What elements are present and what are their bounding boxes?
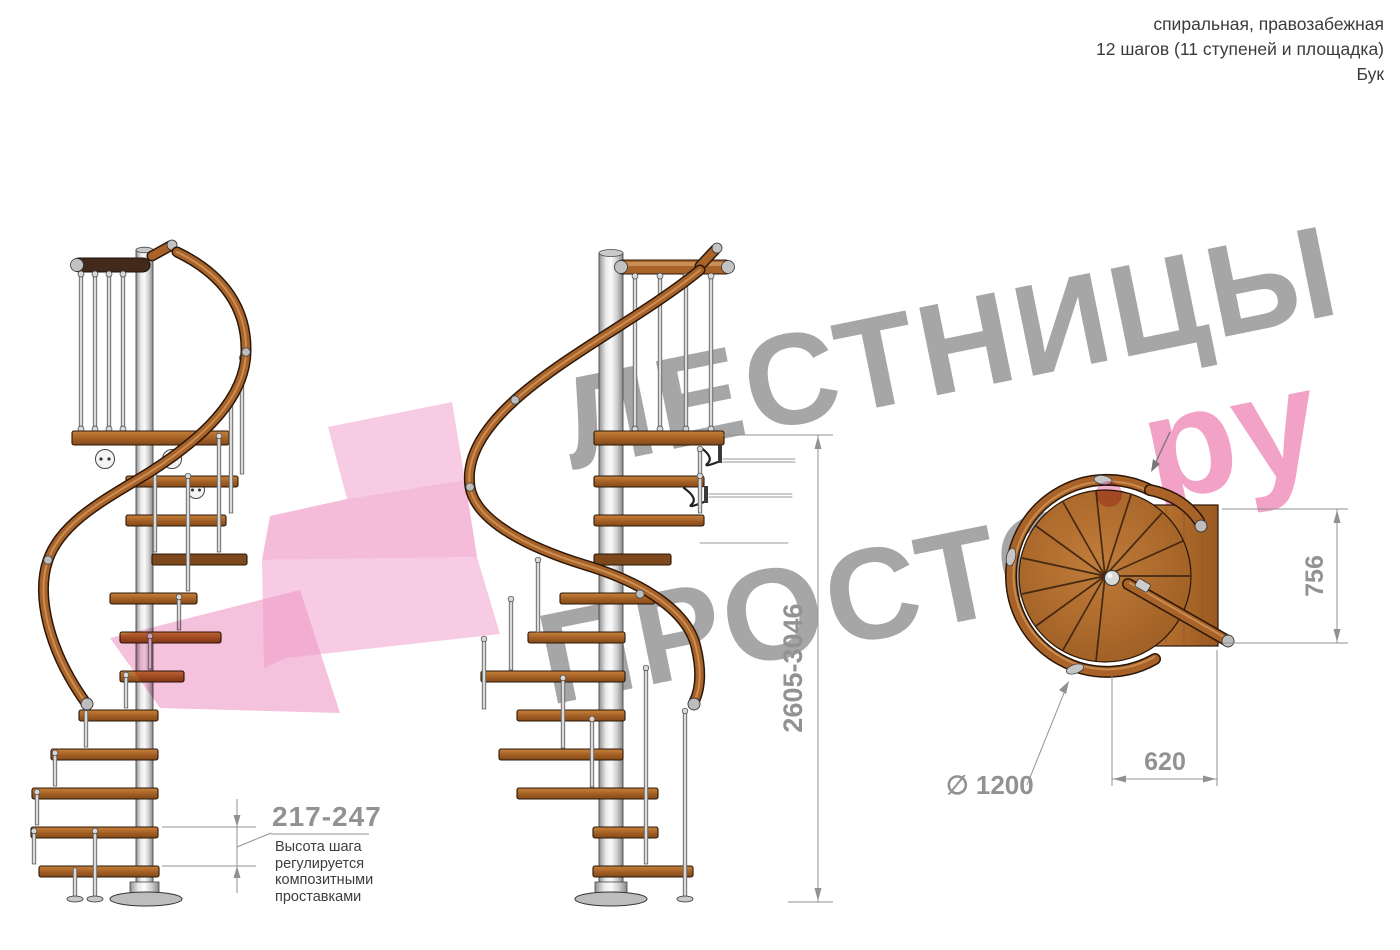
header-steps-line: 12 шагов (11 ступеней и площадка): [1096, 37, 1384, 62]
step-height-note: Высота шага регулируется композитными пр…: [275, 839, 373, 905]
arrow-facet-tail: [110, 590, 340, 713]
pink-arrow-watermark: [0, 0, 1400, 950]
header-material-line: Бук: [1096, 62, 1384, 87]
watermark-period-dot: [1096, 481, 1122, 507]
header-type-line: спиральная, правозабежная: [1096, 12, 1384, 37]
title-block: спиральная, правозабежная 12 шагов (11 с…: [1096, 12, 1384, 87]
blueprint-canvas: ЛЕСТНИЦЫ ПРОСТОру: [0, 0, 1400, 950]
